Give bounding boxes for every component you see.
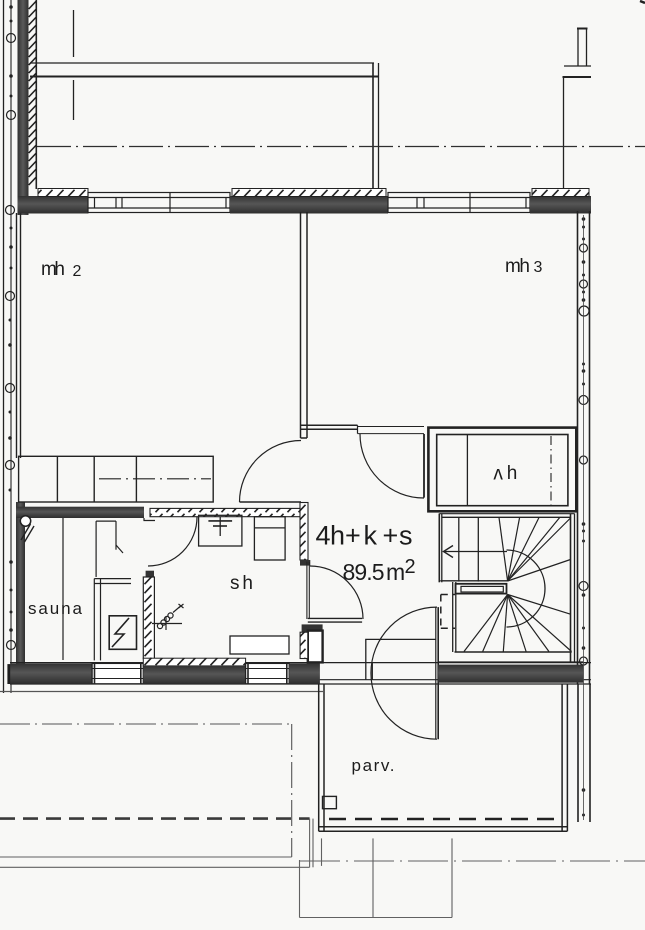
svg-text:mh: mh xyxy=(41,259,65,280)
svg-text:m: m xyxy=(386,559,405,585)
svg-text:89.5: 89.5 xyxy=(343,559,385,585)
svg-text:sauna: sauna xyxy=(28,599,83,618)
svg-text:h: h xyxy=(507,463,518,484)
svg-text:sh: sh xyxy=(230,573,253,594)
svg-text:4h+k+s: 4h+k+s xyxy=(316,521,413,551)
svg-text:parv.: parv. xyxy=(352,756,395,775)
svg-text:v: v xyxy=(493,464,503,485)
svg-text:2: 2 xyxy=(405,556,416,578)
svg-text:mh: mh xyxy=(505,256,530,277)
svg-text:3: 3 xyxy=(534,259,543,276)
svg-text:2: 2 xyxy=(73,263,82,280)
